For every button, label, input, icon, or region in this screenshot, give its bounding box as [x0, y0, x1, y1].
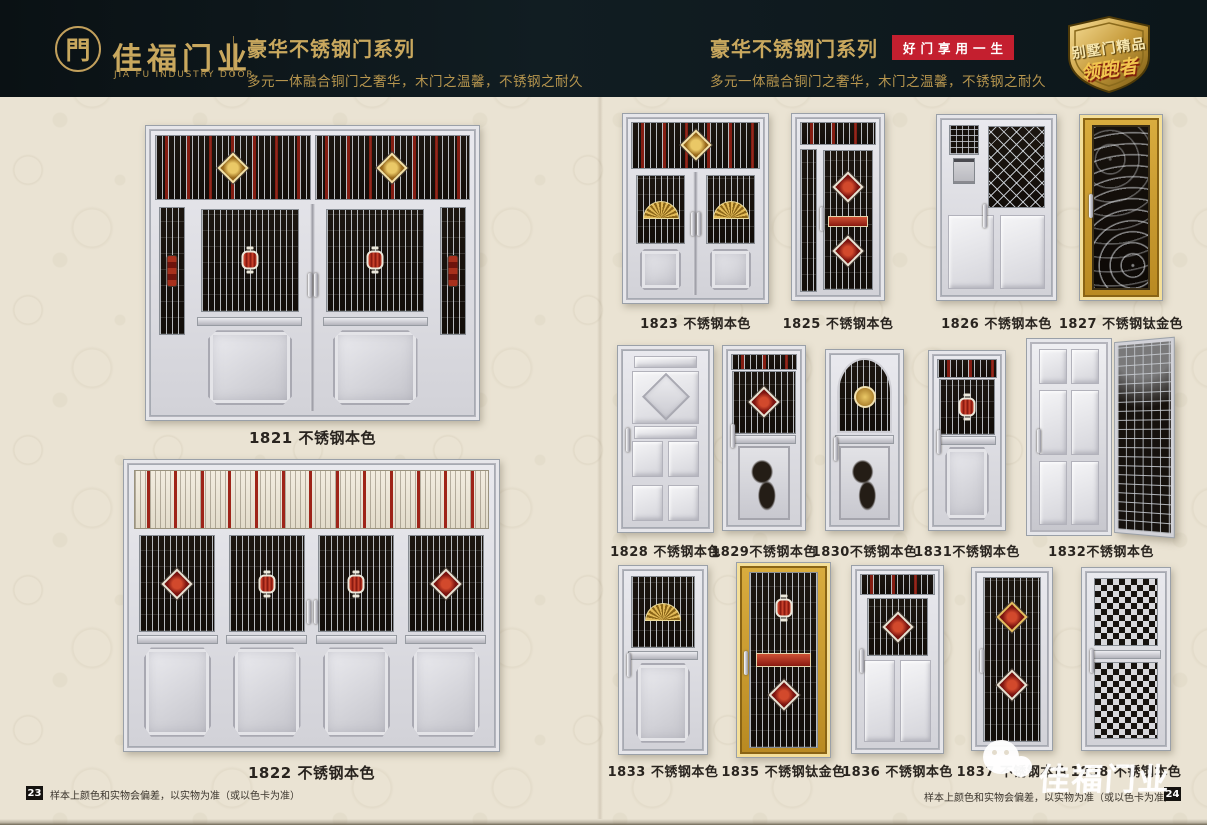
- door-image-1838: [1081, 567, 1171, 751]
- kick-band: [938, 436, 996, 445]
- ornament: [775, 598, 792, 617]
- door-leaf: [134, 532, 221, 741]
- door-image-1829: [722, 345, 806, 531]
- diamond-ornament: [217, 152, 248, 183]
- door-handle: [980, 649, 984, 673]
- grille-panel: [800, 122, 876, 145]
- door-image-1821: [145, 125, 480, 421]
- ornament: [887, 616, 909, 638]
- award-shield-badge: 别墅门精品 领跑者: [1057, 14, 1161, 94]
- tassel-ornament: [168, 256, 177, 286]
- grille-panel: [860, 574, 935, 595]
- door-image-1833: [618, 565, 708, 755]
- ornament: [685, 134, 707, 156]
- door-image-1830: [825, 349, 904, 531]
- ornament: [222, 157, 244, 179]
- header-band: 門 佳福门业 JIA FU INDUSTRY DOOR 豪华不锈钢门系列 多元一…: [0, 0, 1207, 97]
- door-leaf: [946, 124, 982, 211]
- door-section-row: [632, 441, 698, 521]
- diamond-ornament: [832, 235, 863, 266]
- door-part: [946, 185, 982, 210]
- octagon-emboss-panel: [333, 330, 418, 405]
- kick-band: [405, 635, 486, 644]
- grille-panel: [749, 572, 819, 748]
- series-subtitle-left: 多元一体融合铜门之奢华，木门之温馨，不锈钢之耐久: [247, 70, 583, 90]
- grille-panel: [631, 576, 695, 647]
- page-number-left: 23: [26, 786, 43, 800]
- diamond-ornament: [748, 387, 779, 418]
- octagon-emboss-panel: [412, 647, 480, 736]
- emboss-panel: [1071, 349, 1099, 384]
- grille-panel: [326, 209, 424, 313]
- emboss-panel: [1039, 461, 1067, 525]
- emboss-panel: [632, 441, 663, 477]
- door-handle: [307, 600, 311, 624]
- red-band: [828, 216, 868, 227]
- door-section-row: [797, 147, 879, 295]
- ornament: [241, 251, 258, 270]
- door-image-1823: [622, 113, 769, 304]
- emblem-glyph: 門: [65, 31, 90, 67]
- grille-panel: [159, 207, 185, 335]
- door-image-1822: [123, 459, 500, 752]
- series-subtitle-right: 多元一体融合铜门之奢华，木门之温馨，不锈钢之耐久: [710, 70, 1046, 90]
- octagon-emboss-panel: [945, 447, 989, 520]
- door-handle: [983, 204, 987, 228]
- door-leaf: [193, 204, 307, 411]
- ornament: [713, 201, 749, 219]
- door-body: [741, 567, 826, 753]
- watermark-text: 佳福门业: [1037, 754, 1172, 799]
- kick-band: [1091, 650, 1161, 659]
- ornament: [258, 574, 275, 593]
- grille-panel: [229, 535, 305, 631]
- door-section-row: [857, 658, 938, 748]
- series-block-right: 豪华不锈钢门系列好门享用一生 多元一体融合铜门之奢华，木门之温馨，不锈钢之耐久: [710, 33, 1046, 90]
- lantern-ornament: [258, 574, 275, 593]
- ornament: [837, 240, 859, 262]
- kick-band: [197, 317, 302, 326]
- grille-panel: [139, 535, 215, 631]
- door-image-1836: [851, 565, 944, 754]
- emboss-panel: [634, 356, 697, 368]
- door-body: [627, 118, 764, 299]
- kick-band: [732, 435, 797, 444]
- door-handle: [820, 207, 824, 231]
- octagon-emboss-panel: [640, 249, 681, 290]
- door-leaf: [224, 532, 311, 741]
- page-bottom-shadow: [0, 819, 1207, 825]
- door-section-row: [1026, 338, 1176, 536]
- door-body: [622, 350, 709, 528]
- door-section-row: [1032, 344, 1106, 530]
- fan-ornament: [645, 603, 681, 621]
- door-body: [796, 118, 880, 296]
- lantern-ornament: [367, 251, 384, 270]
- etched-art-panel: [738, 446, 790, 520]
- diamond-ornament: [996, 670, 1027, 701]
- grille-panel: [408, 535, 484, 631]
- grille-panel: [636, 175, 684, 244]
- mascot-icon: [983, 740, 1019, 774]
- diamond-ornament: [377, 152, 408, 183]
- door-image-1832: [1026, 338, 1176, 536]
- door-section-row: [129, 532, 494, 746]
- door-handle: [1089, 194, 1093, 218]
- catalog-spread: 門 佳福门业 JIA FU INDUSTRY DOOR 豪华不锈钢门系列 多元一…: [0, 0, 1207, 825]
- diamond-ornament: [882, 611, 913, 642]
- intercom-unit: [953, 158, 975, 184]
- lantern-ornament: [348, 574, 365, 593]
- lantern-ornament: [241, 251, 258, 270]
- door-leaf: [435, 204, 470, 411]
- diamond-ornament: [768, 679, 799, 710]
- grille-panel: [937, 359, 997, 378]
- lantern-ornament: [775, 598, 792, 617]
- diamond-ornament: [162, 568, 193, 599]
- ornament: [1001, 674, 1023, 696]
- diamond-ornament: [832, 172, 863, 203]
- door-body: [976, 572, 1048, 746]
- emboss-panel: [632, 485, 663, 521]
- series-title-left: 豪华不锈钢门系列: [247, 33, 415, 62]
- door-body: [150, 130, 475, 416]
- door-handle: [731, 424, 735, 448]
- center-stile: [310, 204, 315, 411]
- grille-panel: [440, 207, 466, 335]
- door-body: [856, 570, 939, 749]
- color-note-left: 样本上颜色和实物会偏差，以实物为准（或以色卡为准）: [50, 787, 300, 802]
- door-leaf: [668, 441, 699, 521]
- header-divider: [233, 36, 234, 76]
- door-body: [933, 355, 1001, 526]
- octagon-emboss-panel: [144, 647, 212, 736]
- fan-ornament: [713, 201, 749, 219]
- door-leaf: [155, 204, 190, 411]
- vent-grille: [949, 125, 980, 154]
- ornament: [773, 684, 795, 706]
- grille-panel: [983, 577, 1040, 742]
- door-emblem-icon: 門: [55, 26, 101, 72]
- door-handle: [1037, 429, 1041, 453]
- door-body: [1086, 572, 1166, 746]
- door-leaf: [632, 441, 663, 521]
- ornament: [348, 574, 365, 593]
- door-section-row: [942, 215, 1051, 296]
- door-leaf: [318, 204, 432, 411]
- door-handle: [697, 212, 701, 236]
- diamond-emboss: [641, 373, 690, 422]
- door-image-1826: [936, 114, 1057, 301]
- emboss-panel: [1039, 390, 1067, 454]
- lantern-ornament: [959, 397, 976, 416]
- emboss-panel: [634, 426, 697, 438]
- door-handle: [1090, 649, 1094, 673]
- ornate-scroll-panel: [1092, 125, 1150, 290]
- ornament: [959, 397, 976, 416]
- door-image-1837: [971, 567, 1053, 751]
- kick-band: [323, 317, 428, 326]
- door-handle: [691, 212, 695, 236]
- octagon-emboss-panel: [323, 647, 391, 736]
- door-leaf: [1039, 349, 1067, 525]
- series-title-right: 豪华不锈钢门系列: [710, 33, 878, 62]
- door-handle: [937, 430, 941, 454]
- light-grille-transom: [134, 470, 489, 529]
- kick-band: [628, 651, 698, 660]
- grille-panel: [823, 150, 873, 290]
- door-label-1832: 1832不锈钢本色: [1011, 541, 1191, 560]
- door-section-row: [942, 120, 1051, 215]
- door-leaf: [403, 532, 490, 741]
- emboss-panel: [1071, 461, 1099, 525]
- emboss-panel: [632, 371, 698, 424]
- page-fold: [597, 97, 603, 819]
- checker-grille: [1094, 578, 1158, 647]
- door-image-1835: [736, 562, 831, 758]
- door-handle: [314, 600, 318, 624]
- emboss-panel: [1039, 349, 1067, 384]
- door-body: [830, 354, 899, 526]
- octagon-emboss-panel: [636, 663, 691, 743]
- grille-panel: [631, 122, 760, 169]
- octagon-emboss-panel: [233, 647, 301, 736]
- door-leaf: [631, 172, 690, 295]
- emboss-panel: [864, 660, 894, 742]
- ornament: [166, 573, 188, 595]
- series-block-left: 豪华不锈钢门系列 多元一体融合铜门之奢华，木门之温馨，不锈钢之耐久: [247, 33, 583, 90]
- door-image-1828: [617, 345, 714, 533]
- door-handle: [834, 437, 838, 461]
- octagon-emboss-panel: [710, 249, 751, 290]
- ornament: [168, 256, 177, 286]
- red-band: [756, 653, 812, 667]
- ornament: [435, 573, 457, 595]
- octagon-emboss-panel: [208, 330, 293, 405]
- door-label-1825: 1825 不锈钢本色: [748, 313, 928, 332]
- door-body: [727, 350, 801, 526]
- kick-band: [226, 635, 307, 644]
- door-body: [623, 570, 703, 750]
- fan-ornament: [643, 201, 679, 219]
- door-image-1825: [791, 113, 885, 301]
- ornament: [643, 201, 679, 219]
- ornament: [854, 386, 876, 408]
- gold-medallion: [854, 386, 876, 408]
- grille-panel: [731, 354, 797, 370]
- grille-panel: [732, 371, 795, 434]
- tassel-ornament: [448, 256, 457, 286]
- door-section-row: [151, 202, 474, 415]
- door-body: [1026, 338, 1176, 536]
- kick-band: [835, 435, 894, 444]
- door-section: [837, 358, 892, 433]
- checker-grille: [1094, 662, 1158, 739]
- grille-panel: [939, 379, 996, 435]
- door-label-1827: 1827 不锈钢钛金色: [1031, 313, 1207, 332]
- grille-panel: [867, 598, 929, 656]
- grille-panel: [201, 209, 299, 313]
- emboss-panel: [668, 485, 699, 521]
- ornament: [753, 391, 775, 413]
- door-handle: [860, 649, 864, 673]
- door-handle: [314, 273, 318, 297]
- door-image-1831: [928, 350, 1006, 531]
- ornament: [1001, 606, 1023, 628]
- door-handle: [744, 651, 748, 675]
- diamond-lattice-window: [988, 126, 1045, 208]
- emboss-panel: [900, 660, 930, 742]
- kick-band: [137, 635, 218, 644]
- door-section-row: [628, 172, 763, 298]
- door-label-1822: 1822 不锈钢本色: [222, 762, 402, 783]
- door-section-row: [151, 131, 474, 202]
- ornament: [367, 251, 384, 270]
- grille-panel: [706, 175, 754, 244]
- door-handle: [627, 653, 631, 677]
- ornament: [645, 603, 681, 621]
- emboss-panel: [668, 441, 699, 477]
- door-handle: [308, 273, 312, 297]
- door-body: [941, 119, 1052, 296]
- emboss-panel: [1071, 390, 1099, 454]
- door-leaf: [313, 532, 400, 741]
- kick-band: [316, 635, 397, 644]
- door-leaf: [1071, 349, 1099, 525]
- grille-panel: [800, 149, 817, 292]
- grille-panel: [155, 135, 311, 200]
- door-body: [128, 464, 495, 747]
- ornament: [837, 176, 859, 198]
- diamond-ornament: [996, 601, 1027, 632]
- emboss-panel: [1000, 215, 1046, 290]
- open-security-leaf: [1115, 337, 1173, 536]
- brand-watermark: 佳福门业: [983, 740, 1171, 799]
- door-image-1827: [1079, 114, 1163, 301]
- door-body: [1084, 119, 1158, 296]
- ornament: [448, 256, 457, 286]
- diamond-ornament: [430, 568, 461, 599]
- grille-panel: [318, 535, 394, 631]
- door-handle: [626, 428, 630, 452]
- diamond-ornament: [680, 130, 711, 161]
- grille-panel: [315, 135, 471, 200]
- etched-art-panel: [839, 446, 890, 520]
- door-label-1821: 1821 不锈钢本色: [223, 427, 403, 448]
- ornament: [381, 157, 403, 179]
- slogan-badge: 好门享用一生: [892, 35, 1014, 60]
- door-leaf: [701, 172, 760, 295]
